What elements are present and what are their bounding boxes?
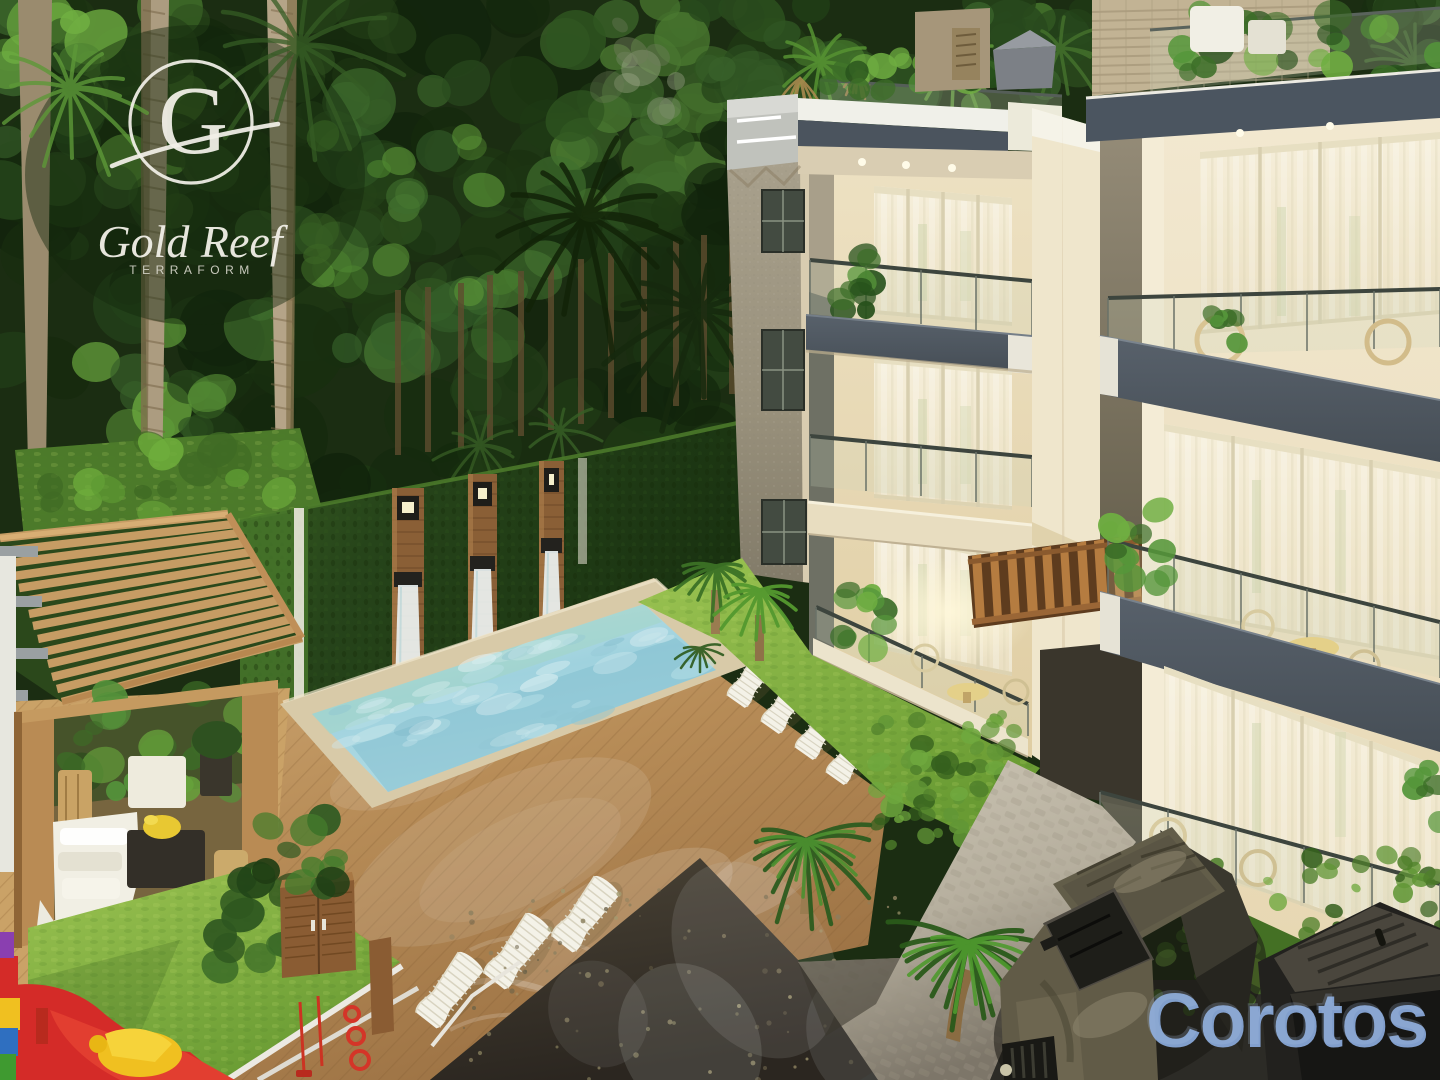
- svg-text:Corotos: Corotos: [1144, 975, 1425, 1061]
- svg-text:G: G: [158, 67, 228, 174]
- svg-text:TERRAFORM: TERRAFORM: [129, 263, 255, 277]
- svg-text:Gold Reef: Gold Reef: [97, 216, 288, 267]
